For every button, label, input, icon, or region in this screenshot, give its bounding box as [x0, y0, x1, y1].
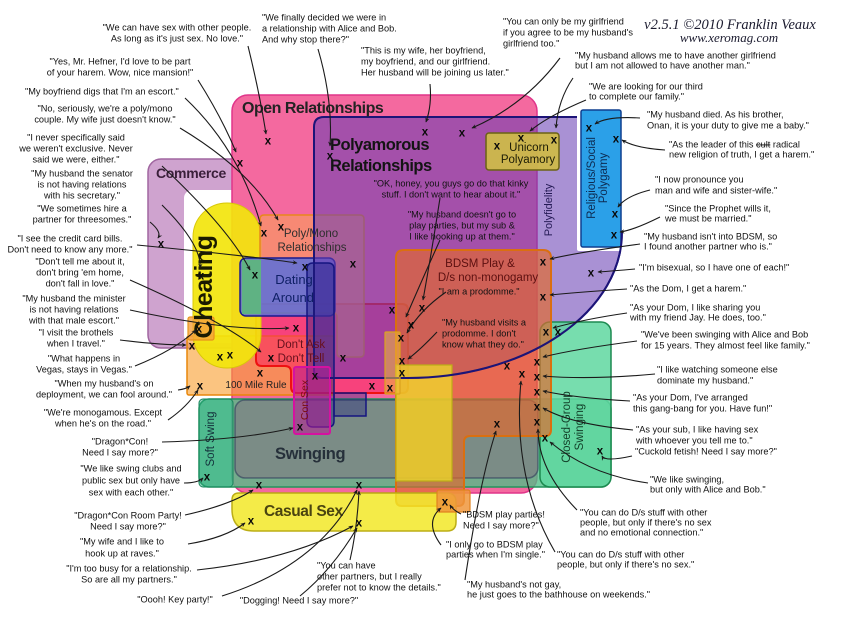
svg-text:prodomme. I don't: prodomme. I don't: [442, 329, 516, 339]
svg-text:"We're monogamous. Except: "We're monogamous. Except: [44, 408, 163, 418]
svg-text:Polygamy: Polygamy: [598, 153, 610, 204]
svg-text:"I see the credit card bills.: "I see the credit card bills.: [18, 234, 123, 244]
svg-text:x: x: [540, 292, 547, 304]
svg-text:"Dogging! Need I say more?": "Dogging! Need I say more?": [240, 596, 358, 606]
svg-text:x: x: [459, 128, 466, 140]
svg-text:a relationship with Alice and: a relationship with Alice and Bob.: [262, 24, 397, 34]
svg-text:"My husband doesn't go to: "My husband doesn't go to: [408, 210, 516, 220]
svg-text:So are all my partners.": So are all my partners.": [81, 575, 177, 585]
svg-text:Need I say more?": Need I say more?": [82, 448, 158, 458]
svg-text:"Yes, Mr. Hefner, I'd love to: "Yes, Mr. Hefner, I'd love to be part: [49, 57, 190, 67]
svg-text:new religion of truth, I get a: new religion of truth, I get a harem.": [669, 150, 814, 160]
svg-text:x: x: [398, 333, 405, 345]
svg-text:"I now pronounce you: "I now pronounce you: [655, 175, 744, 185]
svg-text:x: x: [551, 135, 558, 147]
svg-text:"Don't tell me about it,: "Don't tell me about it,: [35, 257, 124, 267]
svg-text:x: x: [422, 127, 429, 139]
svg-text:public sex but only have: public sex but only have: [82, 476, 180, 486]
svg-text:Polyamorous: Polyamorous: [330, 136, 429, 154]
svg-text:Commerce: Commerce: [156, 165, 226, 181]
svg-text:x: x: [518, 133, 525, 145]
svg-text:"My husband allows me to have: "My husband allows me to have another gi…: [575, 51, 776, 61]
svg-text:Religious/Social: Religious/Social: [586, 137, 598, 219]
svg-text:x: x: [248, 516, 255, 528]
svg-text:"My husband died. As his broth: "My husband died. As his brother,: [647, 110, 784, 120]
svg-text:x: x: [227, 350, 234, 362]
svg-text:with his secretary.": with his secretary.": [43, 191, 120, 201]
svg-text:"I'm bisexual, so I have one o: "I'm bisexual, so I have one of each!": [639, 263, 789, 273]
svg-text:x: x: [534, 402, 541, 414]
svg-text:"As the leader of this cult ra: "As the leader of this cult radical: [669, 140, 800, 150]
svg-text:Around: Around: [272, 290, 314, 305]
svg-text:"I like watching someone else: "I like watching someone else: [657, 365, 778, 375]
svg-text:"Since the Prophet wills it,: "Since the Prophet wills it,: [665, 204, 771, 214]
svg-text:"No, seriously, we're a poly/m: "No, seriously, we're a poly/mono: [37, 104, 172, 114]
svg-text:"We like swing clubs and: "We like swing clubs and: [80, 464, 181, 474]
svg-text:other partners, but I really: other partners, but I really: [317, 572, 422, 582]
svg-text:but only with Alice and Bob.": but only with Alice and Bob.": [650, 485, 766, 495]
svg-text:"I'm too busy for a relationsh: "I'm too busy for a relationship.: [66, 564, 192, 574]
svg-text:"What happens in: "What happens in: [48, 354, 120, 364]
svg-text:x: x: [196, 324, 203, 336]
svg-text:"You can do D/s stuff with oth: "You can do D/s stuff with other: [557, 550, 684, 560]
svg-text:Don't Ask: Don't Ask: [277, 339, 325, 351]
svg-text:and no emotional connection.": and no emotional connection.": [580, 528, 703, 538]
svg-text:deployment, we can fool around: deployment, we can fool around.": [36, 390, 172, 400]
svg-text:"As your Dom, I've arranged: "As your Dom, I've arranged: [633, 393, 748, 403]
svg-text:if you agree to be my husband': if you agree to be my husband's: [503, 28, 633, 38]
svg-text:Con Sex: Con Sex: [299, 379, 311, 420]
svg-text:"My wife and I like to: "My wife and I like to: [80, 537, 164, 547]
svg-text:x: x: [350, 259, 357, 271]
svg-text:"Dragon*Con!: "Dragon*Con!: [92, 437, 148, 447]
svg-text:to complete our family.": to complete our family.": [589, 92, 684, 102]
svg-text:"My husband isn't into BDSM, s: "My husband isn't into BDSM, so: [644, 232, 777, 242]
svg-text:don't fall in love.": don't fall in love.": [46, 279, 115, 289]
svg-text:we weren't exclusive. Never: we weren't exclusive. Never: [18, 144, 133, 154]
svg-text:x: x: [597, 446, 604, 458]
svg-text:"My husband's not gay,: "My husband's not gay,: [467, 580, 561, 590]
svg-text:when I travel.": when I travel.": [46, 339, 105, 349]
svg-text:"This is my wife, her boyfrien: "This is my wife, her boyfriend,: [361, 46, 486, 56]
svg-text:"You can do D/s stuff with oth: "You can do D/s stuff with other: [580, 508, 707, 518]
svg-text:x: x: [494, 419, 501, 431]
svg-text:x: x: [278, 222, 285, 234]
svg-text:x: x: [389, 305, 396, 317]
svg-text:dominate my husband.": dominate my husband.": [657, 376, 753, 386]
svg-text:play parties, but my sub &: play parties, but my sub &: [409, 221, 515, 231]
svg-text:Casual Sex: Casual Sex: [264, 503, 343, 520]
svg-text:"We finally decided we were in: "We finally decided we were in: [262, 13, 386, 23]
svg-text:x: x: [261, 228, 268, 240]
svg-text:"When my husband's on: "When my husband's on: [55, 379, 154, 389]
svg-text:x: x: [369, 381, 376, 393]
svg-text:"You can have: "You can have: [317, 561, 376, 571]
svg-text:Dating: Dating: [275, 272, 313, 287]
svg-text:Vegas, stays in Vegas.": Vegas, stays in Vegas.": [36, 365, 132, 375]
svg-text:And why stop there?": And why stop there?": [262, 35, 349, 45]
svg-text:parties when I'm single.": parties when I'm single.": [446, 550, 545, 560]
svg-text:Poly/Mono: Poly/Mono: [284, 228, 338, 240]
svg-text:but I am not allowed to have a: but I am not allowed to have another man…: [575, 61, 750, 71]
svg-text:x: x: [540, 257, 547, 269]
svg-text:Onan, it is your duty to give: Onan, it is your duty to give me a baby.…: [647, 121, 809, 131]
svg-text:couple. My wife just doesn't k: couple. My wife just doesn't know.": [34, 115, 175, 125]
svg-text:x: x: [356, 480, 363, 492]
svg-text:x: x: [534, 357, 541, 369]
svg-text:"We are looking for our third: "We are looking for our third: [589, 82, 703, 92]
svg-text:x: x: [519, 369, 526, 381]
svg-text:"My boyfriend digs that I'm an: "My boyfriend digs that I'm an escort.": [25, 87, 179, 97]
svg-text:Don't need to know any more.": Don't need to know any more.": [7, 245, 132, 255]
svg-text:x: x: [302, 262, 309, 274]
svg-text:BDSM Play &: BDSM Play &: [445, 258, 515, 270]
svg-text:x: x: [297, 422, 304, 434]
svg-text:my boyfriend, and our girlfrie: my boyfriend, and our girlfriend.: [361, 57, 490, 67]
svg-text:x: x: [293, 323, 300, 335]
svg-text:is not having relations: is not having relations: [38, 180, 127, 190]
svg-text:x: x: [158, 239, 165, 251]
svg-text:people, but only if there's no: people, but only if there's no sex: [580, 518, 712, 528]
svg-text:he just goes to the bathhouse: he just goes to the bathhouse on weekend…: [467, 590, 650, 600]
svg-text:when he's on the road.": when he's on the road.": [54, 419, 151, 429]
svg-text:x: x: [356, 518, 363, 530]
svg-text:"I visit the brothels: "I visit the brothels: [39, 328, 114, 338]
svg-text:said we were, either.": said we were, either.": [32, 155, 119, 165]
svg-text:Relationships: Relationships: [330, 157, 432, 175]
svg-text:know what they do.": know what they do.": [442, 340, 524, 350]
svg-text:Polyamory: Polyamory: [501, 154, 556, 166]
svg-text:x: x: [613, 134, 620, 146]
svg-text:x: x: [198, 271, 205, 283]
svg-text:D/s non-monogamy: D/s non-monogamy: [438, 272, 539, 284]
svg-text:this gang-bang for you. Have f: this gang-bang for you. Have fun!": [633, 404, 772, 414]
svg-text:is not having relations: is not having relations: [30, 305, 119, 315]
svg-text:x: x: [399, 368, 406, 380]
svg-text:"You can only be my girlfriend: "You can only be my girlfriend: [503, 17, 624, 27]
svg-text:"I never specifically said: "I never specifically said: [27, 133, 125, 143]
svg-text:x: x: [312, 371, 319, 383]
svg-text:x: x: [442, 497, 449, 509]
svg-text:with my friend Jay. He does, t: with my friend Jay. He does, too.": [629, 313, 766, 323]
svg-text:Swinging: Swinging: [275, 445, 345, 463]
svg-text:"As the Dom, I get a harem.": "As the Dom, I get a harem.": [630, 284, 746, 294]
svg-text:"I only go to BDSM play: "I only go to BDSM play: [446, 540, 543, 550]
svg-text:x: x: [268, 353, 275, 365]
svg-text:man and wife and sister-wife.": man and wife and sister-wife.": [655, 186, 777, 196]
svg-text:x: x: [534, 387, 541, 399]
svg-text:with that male escort.": with that male escort.": [28, 316, 119, 326]
svg-text:x: x: [534, 417, 541, 429]
svg-text:x: x: [542, 433, 549, 445]
svg-text:we must be married.": we must be married.": [664, 214, 752, 224]
svg-text:x: x: [399, 356, 406, 368]
svg-text:"My husband visits a: "My husband visits a: [442, 318, 527, 328]
svg-text:"Dragon*Con Room Party!: "Dragon*Con Room Party!: [74, 511, 181, 521]
svg-text:hook up at raves.": hook up at raves.": [85, 549, 159, 559]
svg-text:Relationships: Relationships: [277, 242, 346, 254]
svg-text:x: x: [612, 209, 619, 221]
svg-text:x: x: [555, 327, 562, 339]
svg-text:x: x: [257, 368, 264, 380]
svg-text:x: x: [237, 158, 244, 170]
svg-text:"OK, honey, you guys go do tha: "OK, honey, you guys go do that kinky: [374, 179, 529, 189]
svg-text:x: x: [494, 141, 501, 153]
svg-text:"My husband the senator: "My husband the senator: [31, 169, 133, 179]
svg-text:stuff. I don't want to hear ab: stuff. I don't want to hear about it.": [382, 190, 521, 200]
svg-text:partner for threesomes.": partner for threesomes.": [33, 215, 132, 225]
svg-text:x: x: [217, 352, 224, 364]
svg-text:x: x: [252, 270, 259, 282]
svg-text:x: x: [204, 472, 211, 484]
svg-text:x: x: [588, 268, 595, 280]
svg-text:of your harem. Wow, nice mansi: of your harem. Wow, nice mansion!": [47, 68, 194, 78]
svg-text:"As your Dom, I like sharing y: "As your Dom, I like sharing you: [630, 303, 760, 313]
svg-text:Don't Tell: Don't Tell: [278, 353, 325, 365]
svg-text:x: x: [419, 303, 426, 315]
svg-text:Unicorn: Unicorn: [509, 142, 549, 154]
svg-text:"As your sub, I like having se: "As your sub, I like having sex: [636, 425, 759, 435]
svg-text:x: x: [586, 123, 593, 135]
svg-text:Need I say more?": Need I say more?": [90, 522, 166, 532]
svg-text:prefer not to know the details: prefer not to know the details.": [317, 583, 441, 593]
svg-text:don't bring 'em home,: don't bring 'em home,: [36, 268, 124, 278]
svg-text:x: x: [387, 383, 394, 395]
svg-text:Swinging: Swinging: [574, 404, 586, 451]
svg-text:people, but only if there's no: people, but only if there's no sex.": [557, 560, 694, 570]
svg-text:Her husband will be joining us: Her husband will be joining us later.": [361, 68, 509, 78]
svg-text:I found another partner who is: I found another partner who is.": [644, 242, 772, 252]
svg-text:x: x: [534, 372, 541, 384]
svg-text:"We've been swinging with Alic: "We've been swinging with Alice and Bob: [641, 330, 808, 340]
svg-text:girlfriend too.": girlfriend too.": [503, 39, 559, 49]
svg-text:for 15 years. They almost feel: for 15 years. They almost feel like fami…: [641, 341, 810, 351]
svg-text:100 Mile Rule: 100 Mile Rule: [225, 380, 287, 391]
svg-text:As long as it's just sex. No l: As long as it's just sex. No love.": [111, 34, 243, 44]
svg-text:with whoever you tell me to.": with whoever you tell me to.": [635, 436, 753, 446]
svg-text:x: x: [408, 320, 415, 332]
svg-text:"We can have sex with other pe: "We can have sex with other people.: [103, 23, 252, 33]
svg-text:x: x: [543, 327, 550, 339]
svg-text:x: x: [611, 230, 618, 242]
svg-text:www.xeromag.com: www.xeromag.com: [680, 30, 778, 45]
svg-text:"We like swinging,: "We like swinging,: [650, 475, 724, 485]
svg-text:"Oooh! Key party!": "Oooh! Key party!": [137, 595, 212, 605]
svg-text:x: x: [189, 341, 196, 353]
svg-text:sex with each other.": sex with each other.": [89, 488, 173, 498]
svg-text:x: x: [340, 353, 347, 365]
svg-text:x: x: [256, 480, 263, 492]
svg-text:"I am a prodomme.": "I am a prodomme.": [438, 287, 519, 297]
svg-text:"Cuckold fetish! Need I say mo: "Cuckold fetish! Need I say more?": [635, 447, 777, 457]
svg-text:Polyfidelity: Polyfidelity: [543, 183, 555, 236]
svg-text:x: x: [197, 381, 204, 393]
svg-text:x: x: [504, 361, 511, 373]
svg-text:"My husband the minister: "My husband the minister: [22, 294, 125, 304]
svg-text:"We sometimes hire a: "We sometimes hire a: [37, 204, 127, 214]
svg-text:I like hooking up at them.": I like hooking up at them.": [409, 232, 514, 242]
svg-text:x: x: [265, 136, 272, 148]
svg-text:x: x: [327, 151, 334, 163]
